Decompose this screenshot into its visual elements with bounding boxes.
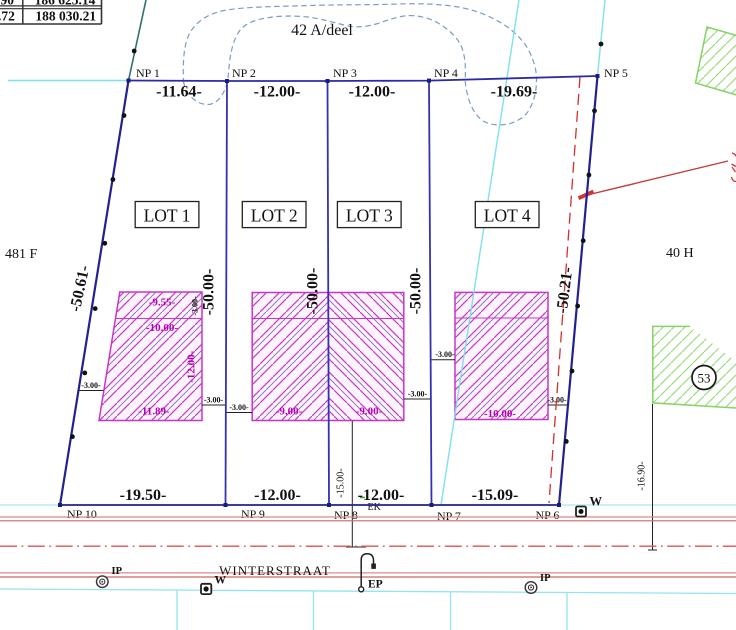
svg-text:-10.00-: -10.00- xyxy=(484,408,516,420)
svg-text:-19.50-: -19.50- xyxy=(120,487,167,504)
svg-text:-12.00-: -12.00- xyxy=(358,487,405,504)
svg-text:-50.00-: -50.00- xyxy=(305,268,322,315)
svg-text:-10.00-: -10.00- xyxy=(146,322,178,334)
svg-text:IP: IP xyxy=(112,566,123,577)
svg-text:EP: EP xyxy=(368,579,383,591)
svg-text:-12.00-: -12.00- xyxy=(254,84,301,101)
svg-text:LOT 4: LOT 4 xyxy=(484,206,531,226)
svg-text:NP 5: NP 5 xyxy=(604,66,628,80)
svg-text:LOT 2: LOT 2 xyxy=(251,206,298,226)
svg-text:-15.00-: -15.00- xyxy=(336,468,347,497)
svg-text:-3.00-: -3.00- xyxy=(229,403,249,412)
svg-text:NP 3: NP 3 xyxy=(333,66,357,80)
svg-text:186 625.14: 186 625.14 xyxy=(35,0,96,8)
svg-text:40 H: 40 H xyxy=(666,246,694,261)
svg-text:-3.00-: -3.00- xyxy=(204,396,224,405)
svg-text:42 A/deel: 42 A/deel xyxy=(291,22,353,39)
svg-text:NP 9: NP 9 xyxy=(241,507,265,521)
svg-text:NP 4: NP 4 xyxy=(434,66,458,80)
svg-text:NP 8: NP 8 xyxy=(334,508,358,522)
svg-text:IP: IP xyxy=(540,573,551,584)
svg-text:-3.00-: -3.00- xyxy=(191,296,200,316)
svg-text:-9.55-: -9.55- xyxy=(149,297,176,309)
svg-text:-15.09-: -15.09- xyxy=(472,487,519,504)
svg-text:W: W xyxy=(215,575,227,587)
svg-text:W: W xyxy=(590,495,603,509)
svg-text:-12.00-: -12.00- xyxy=(254,487,301,504)
svg-text:-12.00-: -12.00- xyxy=(349,84,396,101)
svg-text:-19.69-: -19.69- xyxy=(491,84,538,101)
svg-text:-3.00-: -3.00- xyxy=(435,350,455,359)
svg-text:NP 6: NP 6 xyxy=(536,508,560,522)
svg-text:.72: .72 xyxy=(0,8,15,23)
svg-text:-3.00-: -3.00- xyxy=(547,396,567,405)
svg-text:481 F: 481 F xyxy=(5,247,38,262)
svg-text:-11.89-: -11.89- xyxy=(138,406,170,418)
svg-text:LOT 1: LOT 1 xyxy=(144,206,191,226)
svg-text:-11.64-: -11.64- xyxy=(156,84,202,101)
svg-text:WINTERSTRAAT: WINTERSTRAAT xyxy=(219,563,331,578)
svg-text:53: 53 xyxy=(698,371,711,386)
svg-text:LOT 3: LOT 3 xyxy=(346,206,393,226)
svg-text:-9.00-: -9.00- xyxy=(356,406,383,418)
svg-text:.90: .90 xyxy=(0,0,14,8)
svg-text:-3.00-: -3.00- xyxy=(408,390,428,399)
svg-text:188 030.21: 188 030.21 xyxy=(35,8,96,23)
svg-text:NP 2: NP 2 xyxy=(232,66,256,80)
svg-text:-16.90-: -16.90- xyxy=(637,461,648,490)
svg-text:NP 10: NP 10 xyxy=(67,507,97,521)
svg-text:-12.00-: -12.00- xyxy=(185,350,197,382)
svg-text:NP 1: NP 1 xyxy=(136,66,160,80)
svg-text:-50.00-: -50.00- xyxy=(200,269,217,316)
svg-text:-3.00-: -3.00- xyxy=(81,381,101,390)
svg-text:-50.00-: -50.00- xyxy=(408,268,425,315)
svg-text:-9.00-: -9.00- xyxy=(276,406,303,418)
